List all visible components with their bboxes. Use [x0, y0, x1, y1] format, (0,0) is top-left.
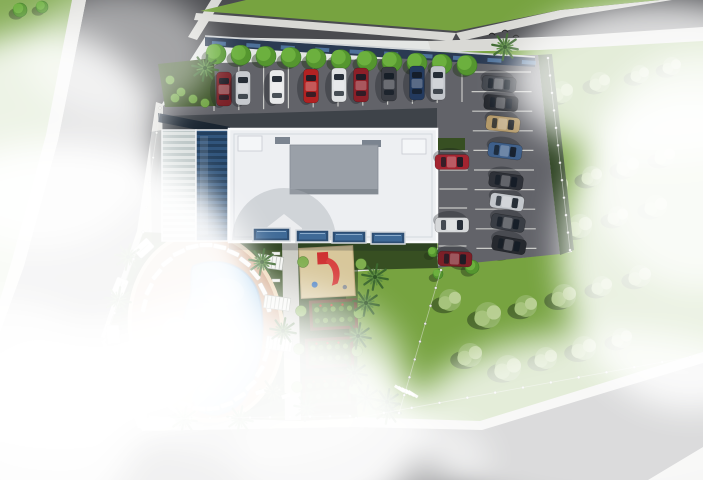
tree-highlight	[457, 56, 471, 70]
roof-unit	[402, 139, 426, 154]
tree-highlight	[13, 3, 23, 13]
roof-skylight	[332, 231, 366, 243]
tree-highlight	[231, 45, 245, 59]
fence-post	[429, 304, 432, 307]
tree-highlight	[36, 1, 45, 10]
fence-post	[559, 161, 562, 164]
fence-post	[563, 196, 566, 199]
tree-highlight	[306, 49, 320, 63]
garden-shrub	[356, 259, 367, 270]
tree-highlight	[281, 48, 295, 62]
wall-glass-panel	[246, 43, 260, 48]
entrance-shrub	[201, 99, 210, 108]
fence-post	[413, 358, 416, 361]
tree-highlight	[331, 50, 345, 64]
roof-vent	[275, 137, 290, 144]
garden-shrub	[298, 257, 309, 268]
tree-highlight	[428, 247, 435, 254]
site-plan-svg	[0, 0, 703, 480]
roof-penthouse-block	[290, 145, 378, 194]
roof-skylight	[371, 232, 405, 244]
fence-post	[557, 144, 560, 147]
wall-glass-panel	[487, 58, 501, 63]
roof-skylight	[253, 228, 290, 241]
fence-post	[408, 376, 411, 379]
tree-highlight	[357, 51, 371, 65]
tree-highlight	[382, 52, 396, 66]
roof-skylight	[296, 230, 329, 242]
fence-post	[561, 179, 564, 182]
tree-highlight	[407, 53, 421, 67]
site-plan-render	[0, 0, 703, 480]
fence-post	[419, 340, 422, 343]
fence-post	[424, 322, 427, 325]
fence-post	[434, 287, 437, 290]
main-building-roof	[229, 129, 465, 244]
roof-unit	[238, 136, 262, 151]
tree-highlight	[256, 47, 270, 61]
fence-post	[440, 269, 443, 272]
